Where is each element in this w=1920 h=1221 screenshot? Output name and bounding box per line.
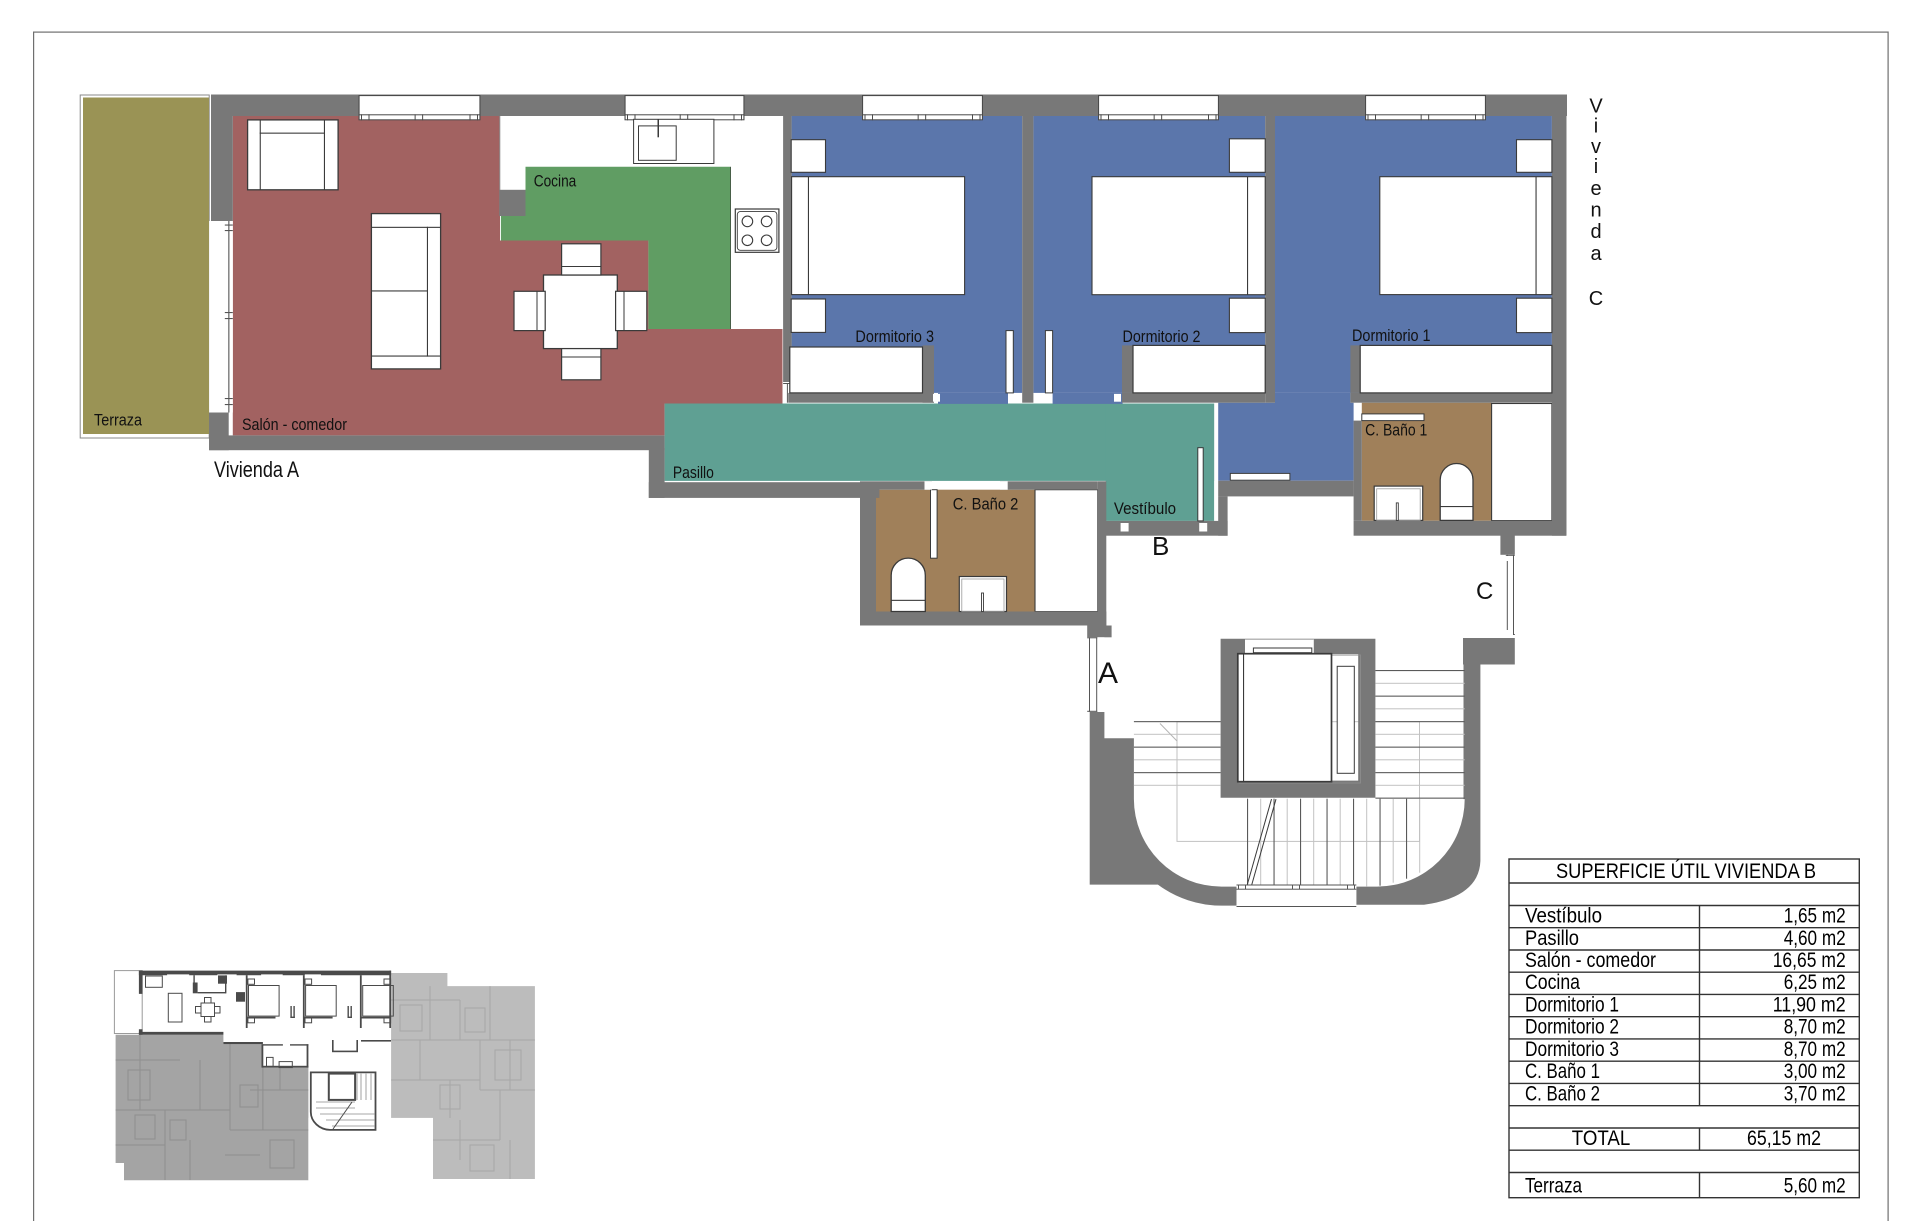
svg-text:Dormitorio 1: Dormitorio 1 [1525,994,1619,1017]
svg-text:TOTAL: TOTAL [1572,1127,1631,1150]
svg-text:5,60 m2: 5,60 m2 [1784,1175,1846,1198]
svg-text:Vivienda A: Vivienda A [214,457,299,482]
svg-text:3,70 m2: 3,70 m2 [1784,1083,1846,1106]
svg-text:Pasillo: Pasillo [1525,927,1579,950]
svg-text:Cocina: Cocina [1525,971,1580,994]
svg-text:C: C [1589,288,1603,310]
svg-text:a: a [1590,243,1602,265]
svg-text:B: B [1152,531,1169,561]
svg-text:C. Baño 1: C. Baño 1 [1525,1060,1600,1083]
svg-text:d: d [1590,221,1601,243]
svg-text:Vestíbulo: Vestíbulo [1525,905,1602,928]
svg-text:V: V [1589,96,1603,118]
svg-text:Dormitorio 3: Dormitorio 3 [1525,1038,1619,1061]
svg-text:8,70 m2: 8,70 m2 [1784,1038,1846,1061]
svg-text:i: i [1594,156,1598,178]
svg-text:n: n [1590,200,1601,222]
svg-text:65,15 m2: 65,15 m2 [1747,1127,1821,1150]
svg-text:C: C [1476,578,1493,605]
svg-text:8,70 m2: 8,70 m2 [1784,1016,1846,1039]
svg-text:Cocina: Cocina [534,172,577,191]
svg-text:v: v [1591,136,1601,158]
svg-text:4,60 m2: 4,60 m2 [1784,927,1846,950]
svg-text:C. Baño 1: C. Baño 1 [1365,421,1427,440]
svg-text:Terraza: Terraza [94,411,142,430]
svg-text:3,00 m2: 3,00 m2 [1784,1060,1846,1083]
svg-text:SUPERFICIE ÚTIL VIVIENDA B: SUPERFICIE ÚTIL VIVIENDA B [1556,860,1816,883]
svg-text:Vestíbulo: Vestíbulo [1114,499,1176,518]
svg-text:Terraza: Terraza [1525,1175,1582,1198]
svg-text:i: i [1594,116,1598,138]
svg-text:Dormitorio 1: Dormitorio 1 [1352,326,1431,345]
svg-text:6,25 m2: 6,25 m2 [1784,971,1846,994]
svg-text:C. Baño 2: C. Baño 2 [1525,1083,1600,1106]
svg-text:11,90 m2: 11,90 m2 [1773,994,1846,1017]
svg-text:A: A [1098,657,1118,690]
svg-text:e: e [1590,178,1601,200]
svg-text:Salón - comedor: Salón - comedor [242,415,347,434]
svg-text:16,65 m2: 16,65 m2 [1773,949,1846,972]
svg-text:1,65 m2: 1,65 m2 [1784,905,1846,928]
svg-text:Dormitorio 2: Dormitorio 2 [1525,1016,1619,1039]
svg-text:Pasillo: Pasillo [673,463,714,482]
svg-text:C. Baño 2: C. Baño 2 [953,495,1019,514]
svg-text:Salón - comedor: Salón - comedor [1525,949,1656,972]
svg-text:Dormitorio 3: Dormitorio 3 [855,327,934,346]
svg-text:Dormitorio 2: Dormitorio 2 [1123,327,1201,346]
